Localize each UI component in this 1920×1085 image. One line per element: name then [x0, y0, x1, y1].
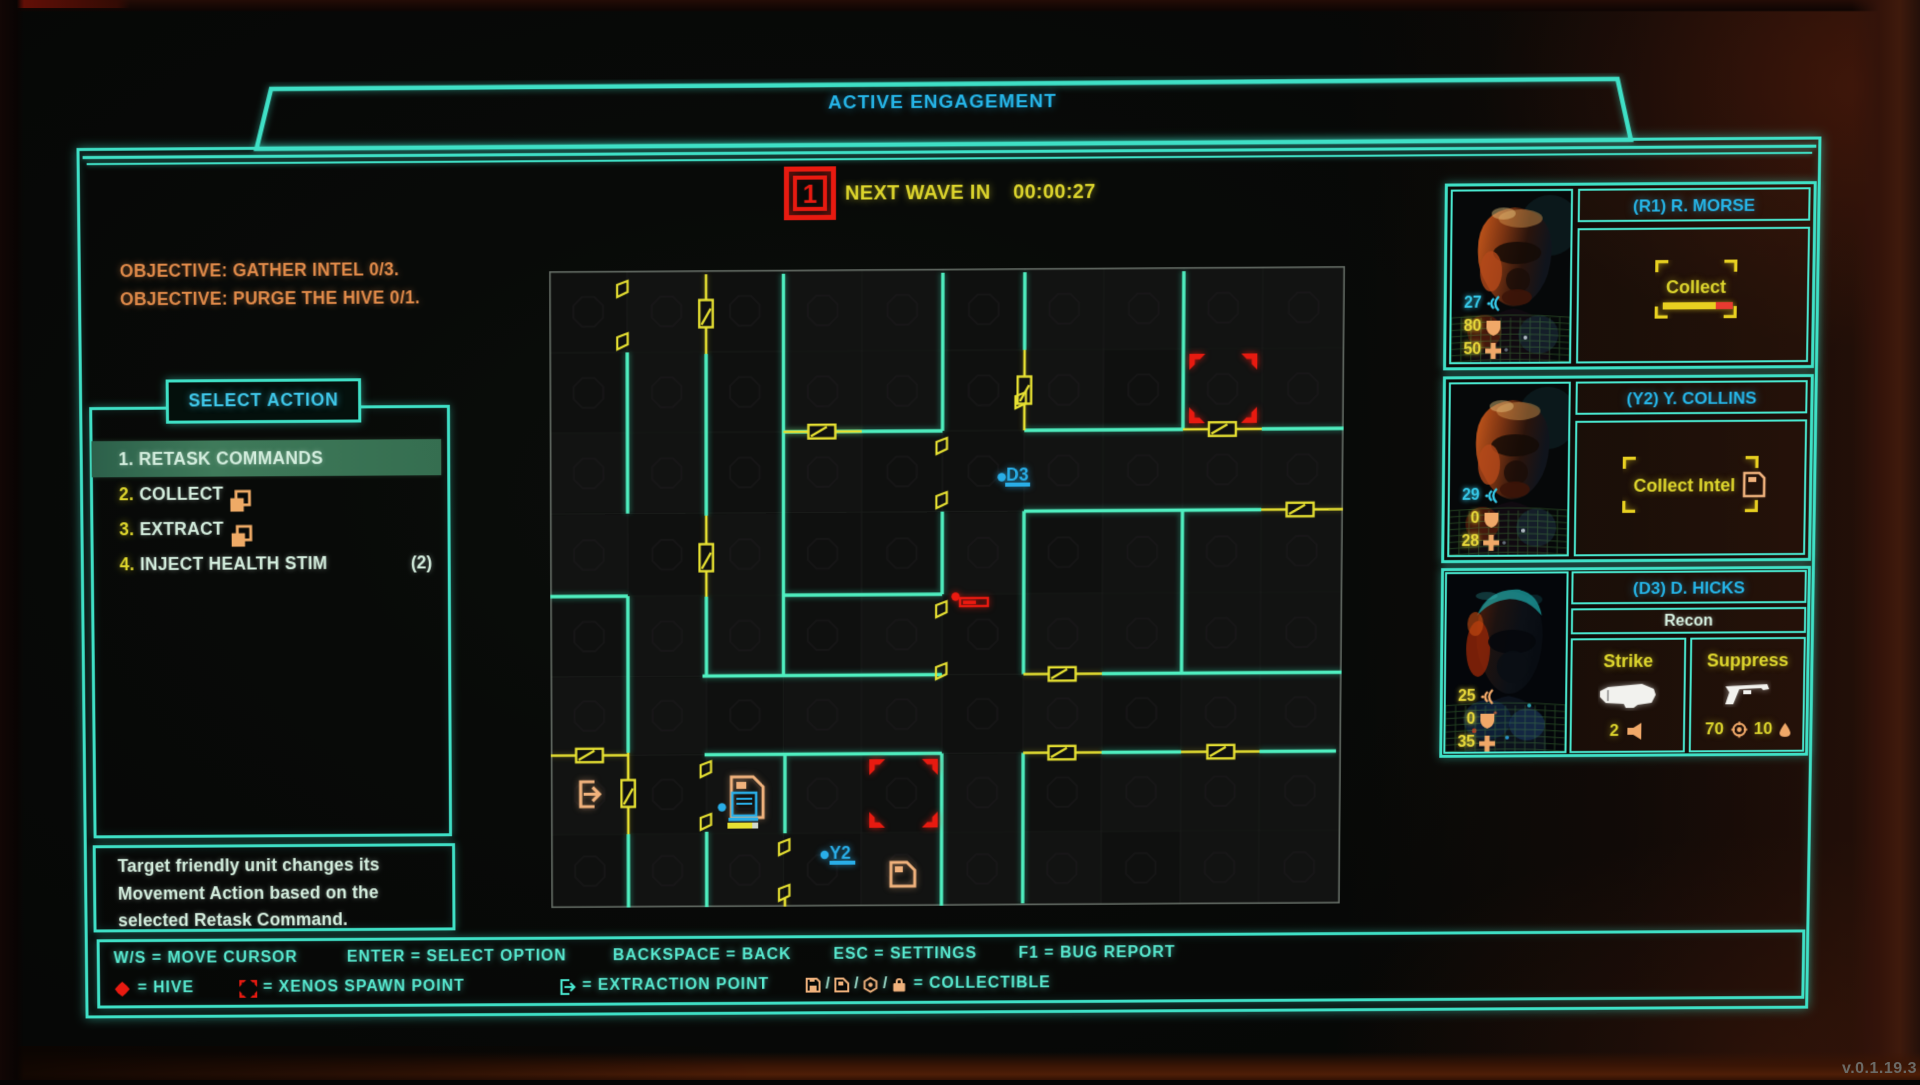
svg-text:D3: D3 — [1006, 465, 1029, 485]
svg-text:Y2: Y2 — [830, 843, 851, 863]
svg-text:1: 1 — [803, 179, 817, 209]
